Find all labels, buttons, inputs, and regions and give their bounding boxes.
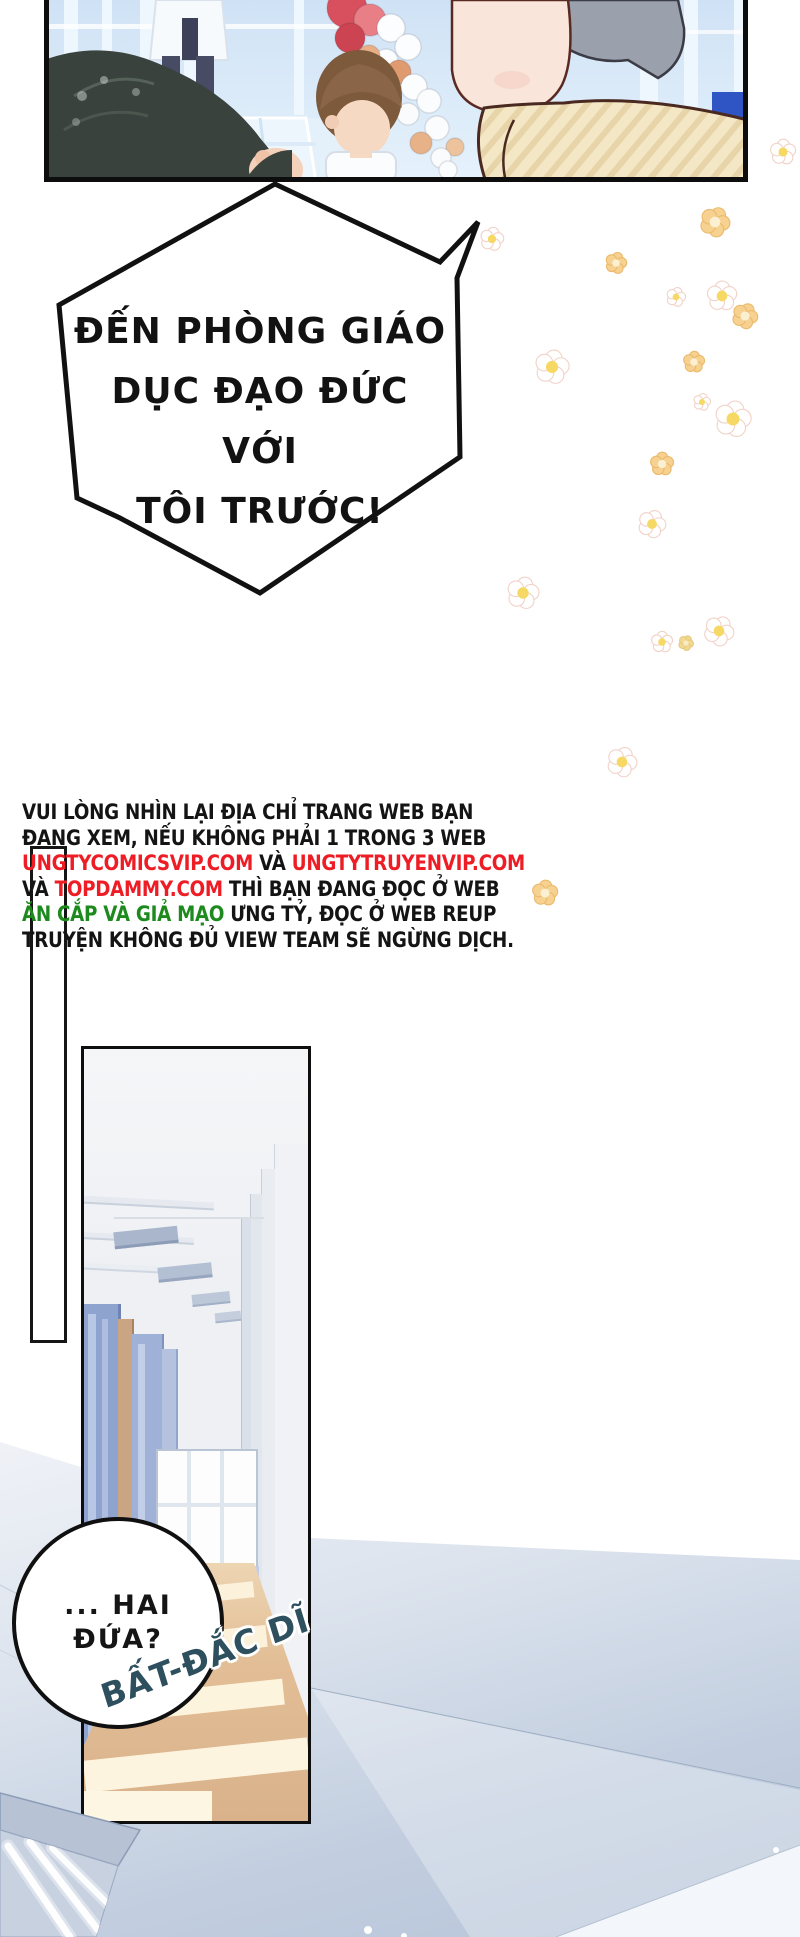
circle-bubble-line-2: ĐỨA? xyxy=(73,1623,163,1657)
hanging-light xyxy=(191,1291,230,1307)
flower-o xyxy=(533,880,558,905)
flower-w xyxy=(771,139,796,164)
sunlight-stripe xyxy=(83,1737,310,1792)
notice-line-6: TRUYỆN KHÔNG ĐỦ VIEW TEAM SẼ NGỪNG DỊCH. xyxy=(22,928,422,954)
hanging-light xyxy=(157,1262,212,1283)
top-panel-scene xyxy=(44,0,748,182)
flower-o xyxy=(606,253,626,274)
notice-line-1: VUI LÒNG NHÌN LẠI ĐỊA CHỈ TRANG WEB BẠN xyxy=(22,800,422,826)
flower-w xyxy=(481,227,504,250)
flower-w xyxy=(536,350,569,383)
anti-piracy-notice: VUI LÒNG NHÌN LẠI ĐỊA CHỈ TRANG WEB BẠNĐ… xyxy=(22,800,482,954)
hanging-light xyxy=(215,1311,242,1324)
face-cheek xyxy=(452,0,570,113)
flower-o xyxy=(684,351,705,372)
flower-y xyxy=(679,636,693,651)
bubble-line-1: ĐẾN PHÒNG GIÁO xyxy=(70,302,450,362)
sunlight-stripe xyxy=(84,1791,212,1824)
flower-w xyxy=(652,631,673,651)
notice-line-5: ĂN CẮP VÀ GIẢ MẠO ƯNG TỶ, ĐỌC Ở WEB REUP xyxy=(22,902,422,928)
flower-w xyxy=(639,511,666,538)
flower-w xyxy=(667,288,685,307)
ceiling-beam xyxy=(84,1196,214,1211)
bubble-line-2: DỤC ĐẠO ĐỨC VỚI xyxy=(70,362,450,482)
flower-w xyxy=(508,577,539,608)
flower-w xyxy=(705,617,734,646)
window-mullion xyxy=(220,1451,224,1566)
flower-o xyxy=(733,304,758,329)
flower-o xyxy=(701,208,730,237)
flower-w xyxy=(716,401,751,436)
striped-shirt xyxy=(478,101,748,182)
flower-w xyxy=(707,281,736,310)
notice-line-4: VÀ TOPDAMMY.COM THÌ BẠN ĐANG ĐỌC Ở WEB xyxy=(22,877,422,903)
notice-line-2: ĐANG XEM, NẾU KHÔNG PHẢI 1 TRONG 3 WEB xyxy=(22,826,422,852)
speech-bubble-text: ĐẾN PHÒNG GIÁO DỤC ĐẠO ĐỨC VỚI TÔI TRƯỚC… xyxy=(70,302,450,542)
top-comic-panel xyxy=(44,0,748,182)
flower-decorations xyxy=(481,139,796,905)
hanging-light xyxy=(113,1226,178,1250)
notice-line-3: UNGTYCOMICSVIP.COM VÀ UNGTYTRUYENVIP.COM xyxy=(22,851,422,877)
bubble-line-3: TÔI TRƯỚC! xyxy=(70,482,450,542)
flower-w xyxy=(608,748,637,777)
flower-w xyxy=(694,394,711,411)
window-mullion xyxy=(158,1503,256,1507)
flower-o xyxy=(651,452,674,475)
comic-page: ĐẾN PHÒNG GIÁO DỤC ĐẠO ĐỨC VỚI TÔI TRƯỚC… xyxy=(0,0,800,1937)
ceiling-edge xyxy=(114,1217,264,1219)
child-figure xyxy=(316,50,402,182)
circle-bubble-line-1: ... HAI xyxy=(64,1589,172,1623)
